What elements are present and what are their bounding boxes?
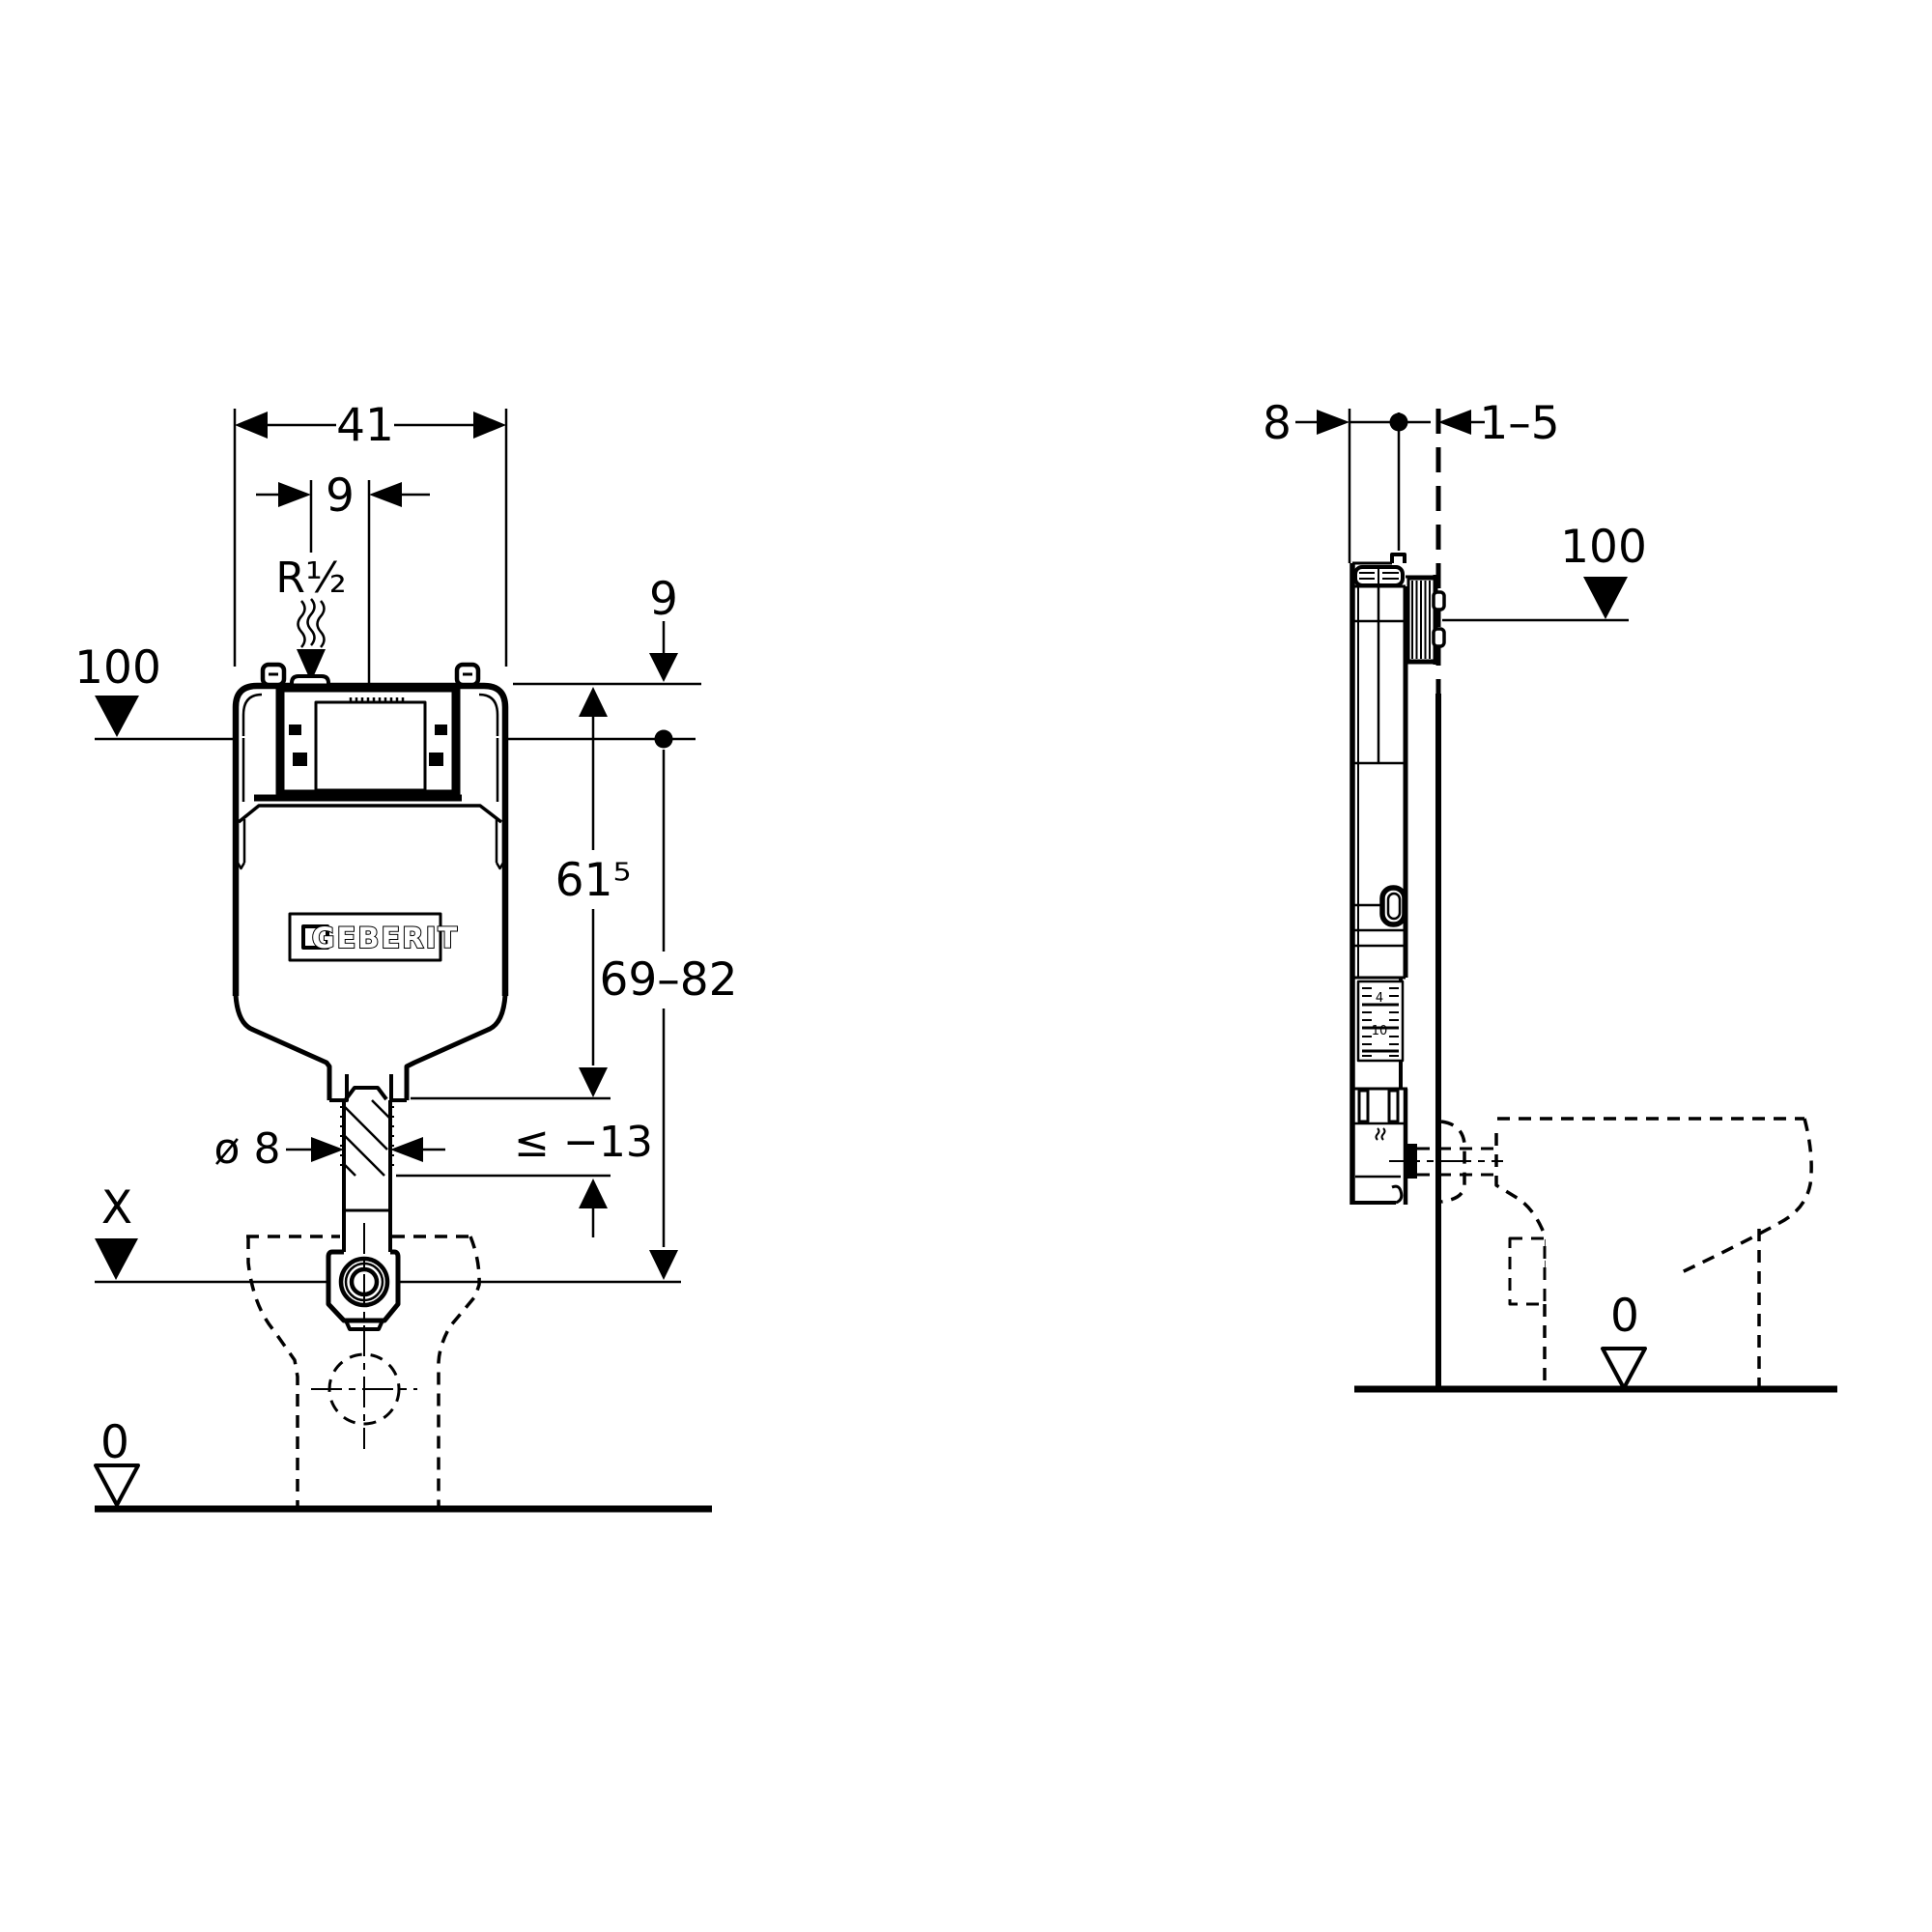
datum-100-label: 100 — [1560, 521, 1647, 574]
cistern-tank: GEBERIT — [236, 665, 505, 1100]
dim-arrow-left-icon — [369, 482, 402, 507]
dim-pipe-diameter: ø 8 — [214, 1124, 445, 1174]
datum-open-triangle-icon — [96, 1465, 138, 1505]
supply-thread-label: R½ — [275, 554, 346, 603]
mounting-pocket — [1510, 1238, 1545, 1304]
installation-diagram: 41 9 R½ 100 9 — [0, 0, 1932, 1932]
datum-0-label: 0 — [100, 1416, 129, 1469]
dim-arrow-right-icon — [278, 482, 311, 507]
scale-mark-label: 10 — [1372, 1024, 1388, 1038]
dim-arrow-up-icon — [579, 687, 608, 717]
cistern-side-profile: 4 10 — [1352, 554, 1503, 1205]
brand-logo: GEBERIT — [290, 914, 459, 960]
datum-0-right: 0 — [1354, 1290, 1837, 1389]
dim-arrow-left-icon — [235, 412, 268, 439]
frame-tab — [293, 753, 307, 766]
measuring-scale: 4 10 — [1358, 981, 1403, 1061]
frame-tab — [289, 724, 301, 735]
dim-actuation-range: 69–82 — [599, 750, 737, 1280]
frame-tab — [429, 753, 443, 766]
dim-arrow-left-icon — [1438, 410, 1471, 435]
dim-pipe-diameter-label: ø 8 — [214, 1124, 281, 1174]
reference-dot-icon — [655, 730, 673, 749]
datum-triangle-icon — [95, 696, 139, 737]
dim-arrow-down-icon — [579, 1067, 608, 1097]
bottom-bracket — [1352, 1089, 1417, 1205]
dim-depth-and-finish: 8 1–5 — [1263, 397, 1560, 563]
front-view: 41 9 R½ 100 9 — [74, 399, 737, 1509]
supply-thread-callout: R½ — [275, 554, 346, 682]
plate-tab — [1434, 592, 1444, 610]
datum-x-label: X — [101, 1181, 132, 1235]
datum-100-label: 100 — [74, 641, 161, 695]
dim-top-offset-label: 9 — [649, 573, 678, 626]
scale-mark-label: 4 — [1376, 991, 1383, 1006]
dim-arrow-up-icon — [579, 1179, 608, 1208]
dim-body-height: 61⁵ — [555, 687, 632, 1097]
dim-arrow-right-icon — [473, 412, 506, 439]
dim-body-height-label: 61⁵ — [555, 854, 632, 907]
dim-width-41: 41 — [235, 399, 506, 667]
technical-drawing-page: 41 9 R½ 100 9 — [0, 0, 1932, 1932]
pipe-hatching — [345, 1100, 389, 1176]
plate-tab — [1434, 629, 1444, 646]
datum-0-left: 0 — [95, 1416, 712, 1509]
dim-top-offset-9: 9 — [513, 573, 701, 684]
datum-open-triangle-icon — [1603, 1349, 1645, 1388]
datum-0-label: 0 — [1610, 1290, 1639, 1343]
dim-arrow-down-icon — [649, 1250, 678, 1280]
dim-arrow-right-icon — [311, 1137, 344, 1162]
dim-cut-length: ≤ −13 — [396, 1098, 653, 1237]
dim-width-label: 41 — [336, 399, 394, 452]
datum-100-right: 100 — [1442, 521, 1647, 620]
dim-cut-length-label: ≤ −13 — [514, 1118, 653, 1167]
datum-triangle-icon — [1583, 577, 1628, 619]
brand-label: GEBERIT — [312, 922, 459, 954]
dim-arrow-left-icon — [390, 1137, 423, 1162]
frame-tab — [435, 724, 447, 735]
dim-actuation-range-label: 69–82 — [599, 953, 737, 1007]
dim-finish-label: 1–5 — [1479, 397, 1559, 450]
datum-triangle-icon — [95, 1238, 138, 1280]
flush-pipe — [311, 1088, 417, 1449]
access-opening — [316, 702, 425, 790]
dim-depth-label: 8 — [1263, 397, 1292, 450]
dim-arrow-down-icon — [649, 653, 678, 682]
dim-arrow-right-icon — [1317, 410, 1350, 435]
side-view: 8 1–5 100 — [1263, 397, 1837, 1389]
dim-supply-offset-label: 9 — [326, 469, 355, 523]
